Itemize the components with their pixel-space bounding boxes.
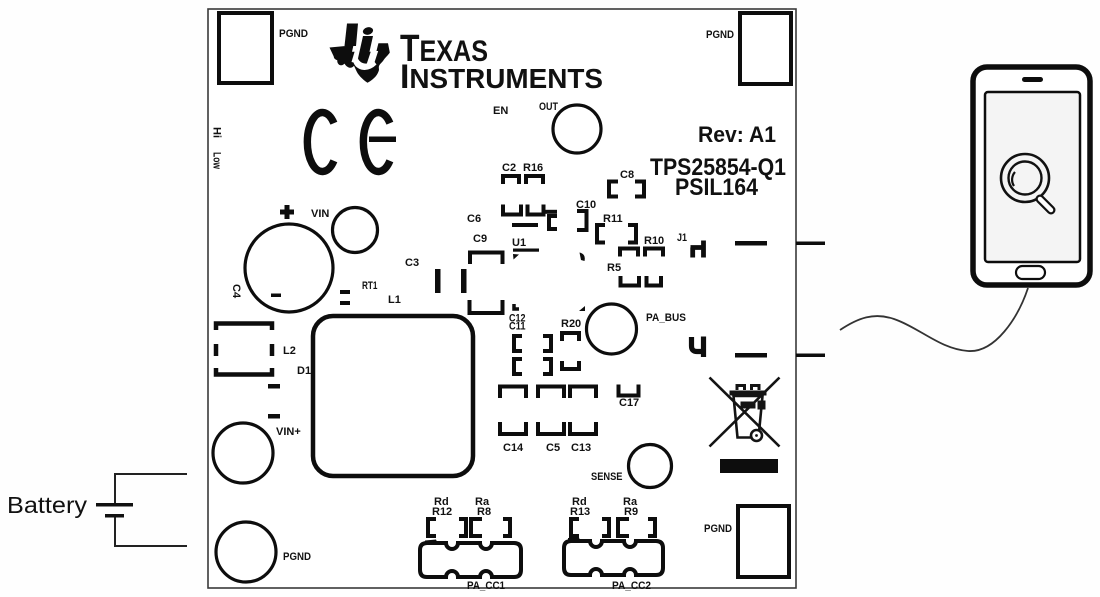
svg-text:VIN+: VIN+ [276, 426, 301, 438]
svg-text:R12: R12 [432, 506, 452, 518]
svg-text:R8: R8 [477, 506, 491, 518]
svg-text:PA_BUS: PA_BUS [646, 312, 686, 324]
svg-text:VIN: VIN [311, 208, 329, 220]
svg-text:C2: C2 [502, 162, 516, 174]
svg-text:R9: R9 [624, 506, 638, 518]
svg-text:C11: C11 [509, 321, 526, 333]
svg-text:R20: R20 [561, 318, 581, 330]
svg-text:PA_CC2: PA_CC2 [612, 580, 651, 592]
svg-text:EN: EN [493, 105, 508, 117]
svg-text:Hi: Hi [211, 127, 223, 138]
svg-text:PGND: PGND [279, 28, 308, 40]
svg-text:PGND: PGND [704, 523, 732, 535]
svg-text:C4: C4 [230, 284, 242, 299]
svg-text:RT1: RT1 [362, 280, 378, 292]
svg-text:C5: C5 [546, 442, 560, 454]
svg-text:SENSE: SENSE [591, 471, 623, 483]
svg-text:R13: R13 [570, 506, 590, 518]
svg-text:Rev: A1: Rev: A1 [698, 122, 776, 147]
svg-text:PSIL164: PSIL164 [675, 174, 759, 201]
svg-text:D1: D1 [297, 365, 311, 377]
svg-text:R11: R11 [603, 213, 623, 225]
svg-text:OUT: OUT [539, 101, 558, 113]
svg-text:L2: L2 [283, 345, 296, 357]
svg-text:L1: L1 [388, 294, 401, 306]
svg-text:J1: J1 [677, 232, 687, 244]
svg-text:Low: Low [211, 152, 223, 169]
svg-text:R5: R5 [607, 262, 621, 274]
svg-text:PGND: PGND [283, 551, 311, 563]
svg-text:C9: C9 [473, 233, 487, 245]
svg-text:C8: C8 [620, 169, 634, 181]
svg-text:PGND: PGND [706, 29, 734, 41]
svg-text:INSTRUMENTS: INSTRUMENTS [400, 58, 603, 96]
svg-text:C3: C3 [405, 257, 419, 269]
svg-text:R10: R10 [644, 235, 664, 247]
svg-text:C14: C14 [503, 442, 524, 454]
svg-text:C6: C6 [467, 213, 481, 225]
svg-text:C17: C17 [619, 397, 639, 409]
svg-text:PA_CC1: PA_CC1 [467, 580, 505, 592]
svg-text:R16: R16 [523, 162, 543, 174]
svg-text:C13: C13 [571, 442, 591, 454]
svg-text:Battery: Battery [7, 492, 88, 518]
svg-text:U1: U1 [512, 237, 526, 249]
